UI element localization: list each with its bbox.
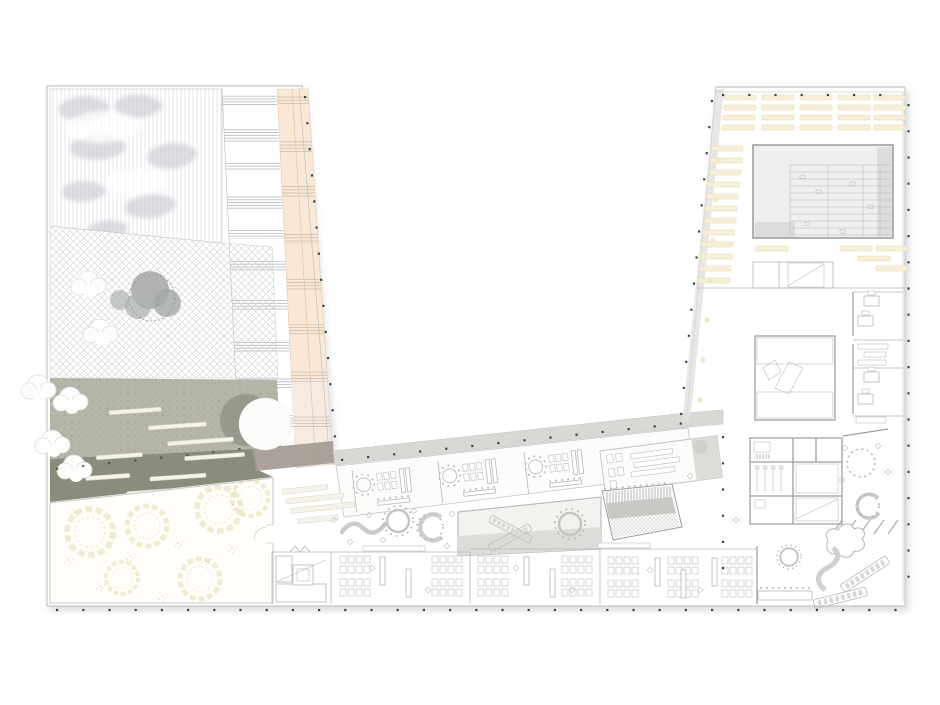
floor-plan-canvas — [0, 0, 940, 705]
tree-icon — [239, 398, 291, 450]
zone-reading-room — [753, 145, 893, 238]
skylight-tab — [598, 543, 650, 548]
floor-plan-drawing — [0, 0, 940, 705]
zone-hatched-plaza — [50, 226, 278, 378]
zone-dune-garden — [50, 89, 222, 243]
skylight-tab — [363, 546, 425, 551]
